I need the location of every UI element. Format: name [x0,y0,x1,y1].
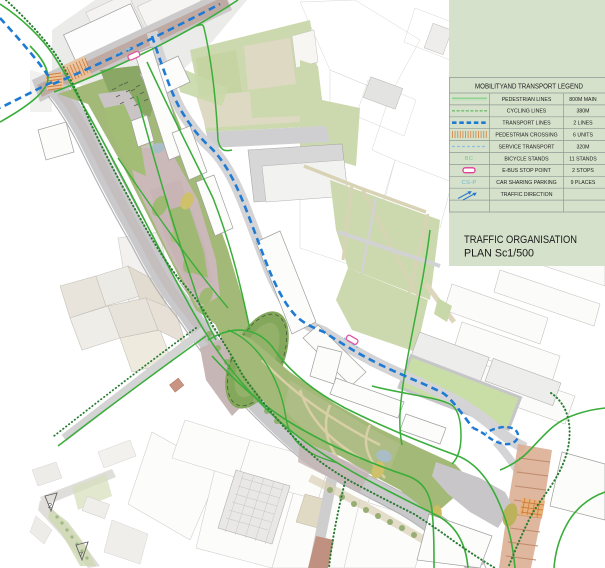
svg-text:9 PLACES: 9 PLACES [571,180,596,186]
svg-text:CYCLING LINES: CYCLING LINES [507,109,547,115]
svg-text:CAR SHARING PARKING: CAR SHARING PARKING [496,180,556,186]
svg-text:PEDESTRIAN LINES: PEDESTRIAN LINES [502,97,552,103]
svg-text:MOBILITYAND TRANSPORT LEGEND: MOBILITYAND TRANSPORT LEGEND [475,82,583,91]
svg-text:800M MAIN: 800M MAIN [569,97,597,103]
svg-text:CS-P: CS-P [461,180,476,186]
svg-text:PEDESTRIAN CROSSING: PEDESTRIAN CROSSING [495,133,557,139]
svg-text:2 LINES: 2 LINES [573,121,593,127]
svg-text:BC: BC [465,156,474,162]
svg-text:2 STOPS: 2 STOPS [572,168,594,174]
svg-text:SERVICE TRANSPORT: SERVICE TRANSPORT [499,144,556,150]
svg-text:380M: 380M [577,109,590,115]
svg-text:BICYCLE STANDS: BICYCLE STANDS [504,156,549,162]
svg-text:6 UNITS: 6 UNITS [573,133,593,139]
svg-text:320M: 320M [577,144,590,150]
svg-text:E-BUS STOP POINT: E-BUS STOP POINT [502,168,551,174]
svg-text:7: 7 [79,550,83,559]
svg-text:11 STANDS: 11 STANDS [569,156,597,162]
svg-text:TRAFFIC ORGANISATION: TRAFFIC ORGANISATION [464,234,577,246]
svg-text:TRAFFIC DIRECTION: TRAFFIC DIRECTION [501,192,553,198]
svg-text:TRANSPORT LINES: TRANSPORT LINES [502,121,551,127]
svg-text:PLAN Sc1/500: PLAN Sc1/500 [464,248,534,260]
svg-text:2: 2 [48,501,52,510]
